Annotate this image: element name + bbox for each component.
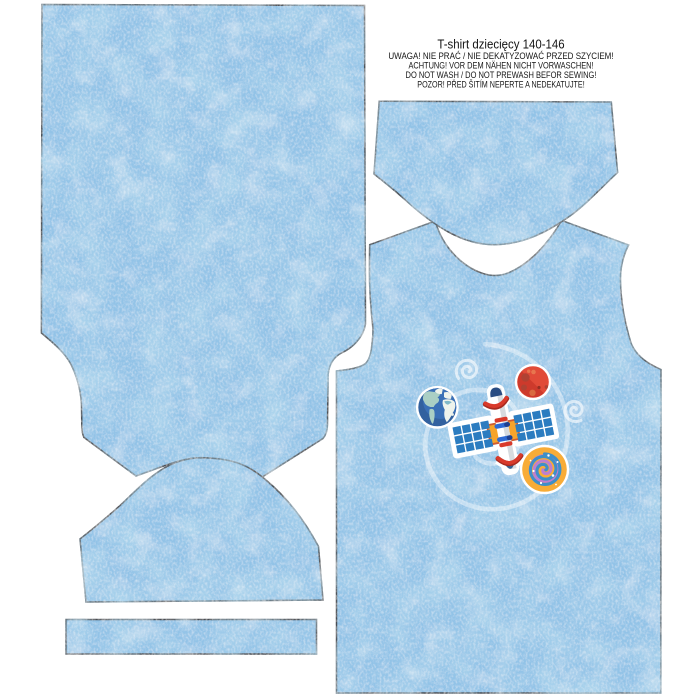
svg-text:POZOR! PŘED ŠITÍM NEPERTE A NE: POZOR! PŘED ŠITÍM NEPERTE A NEDEKATUJTE! bbox=[417, 80, 584, 90]
svg-text:UWAGA! NIE PRAĆ / NIE DEKATYZO: UWAGA! NIE PRAĆ / NIE DEKATYZOWAĆ PRZED … bbox=[388, 51, 613, 61]
svg-text:DO NOT WASH / DO NOT PREWASH B: DO NOT WASH / DO NOT PREWASH BEFOR SEWIN… bbox=[406, 70, 597, 80]
svg-text:ACHTUNG! VOR DEM NÄHEN NICHT V: ACHTUNG! VOR DEM NÄHEN NICHT VORWASCHEN! bbox=[408, 60, 593, 70]
svg-text:T-shirt dziecięcy 140-146: T-shirt dziecięcy 140-146 bbox=[437, 38, 564, 52]
